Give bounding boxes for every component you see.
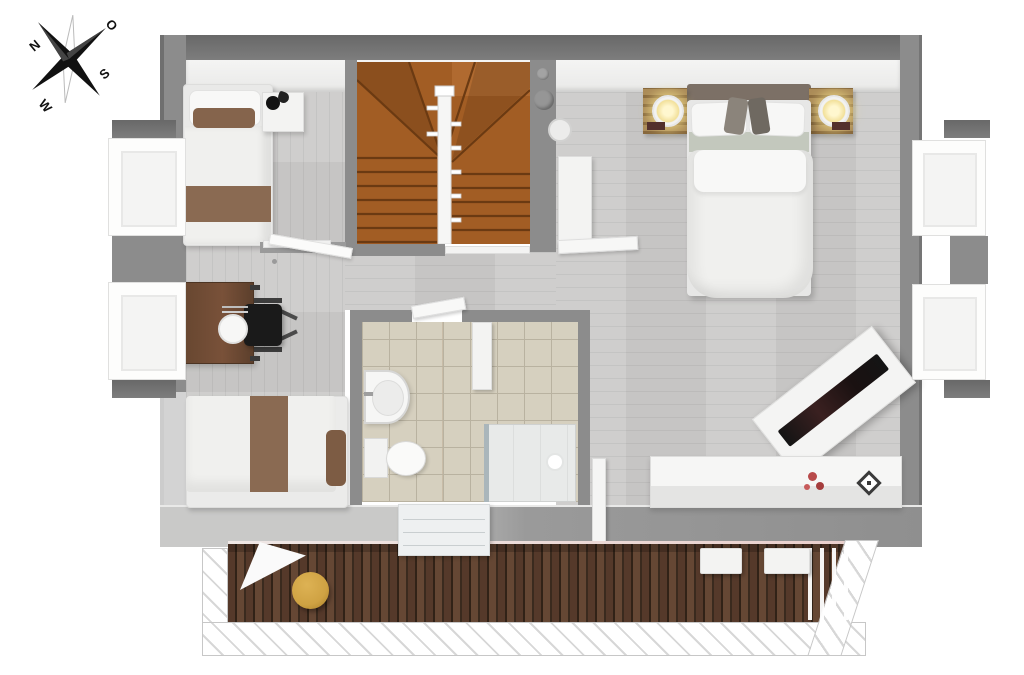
- diamond-decor-dot: [867, 481, 871, 485]
- floor-plan-canvas: N O S W: [0, 0, 1024, 675]
- railing-bottom: [202, 622, 866, 656]
- left-wall-ghost-lower: [160, 392, 186, 505]
- bathroom-top-wall-right: [462, 310, 590, 322]
- deck-wall-shadow: [228, 544, 856, 552]
- compass-label-o: O: [103, 16, 121, 33]
- stairwell-right-wall: [530, 60, 556, 252]
- left-window-1-glass: [121, 151, 177, 227]
- left-window-1: [108, 138, 186, 236]
- railing-right-balusters: [808, 548, 848, 620]
- flower-vase-red-2: [816, 482, 824, 490]
- stair-newel-cap-large: [534, 90, 554, 110]
- double-bed-duvet-fold: [694, 150, 806, 192]
- right-wall: [900, 35, 922, 505]
- shower-glass-panel: [484, 424, 489, 502]
- chair-armrest-bottom: [254, 347, 282, 352]
- left-window-2: [108, 282, 186, 380]
- left-window-mid-pier: [112, 236, 176, 282]
- right-window-1: [912, 140, 986, 236]
- compass-rose: N O S W: [12, 6, 126, 112]
- left-window-cap-top: [112, 120, 176, 138]
- deck-chair-2: [764, 548, 810, 574]
- shower-head-icon: [548, 455, 562, 469]
- stairwell-left-wall: [345, 60, 357, 252]
- glass-door-handle: [272, 259, 277, 264]
- compass-label-s: S: [96, 65, 113, 82]
- left-window-cap-bottom: [112, 380, 176, 398]
- deck-step-line-3: [403, 545, 485, 546]
- flower-vase-red-3: [804, 484, 810, 490]
- desk-leg-top: [250, 285, 260, 290]
- deck-step-line-1: [403, 519, 485, 520]
- stairwell-bottom-wall: [345, 244, 445, 256]
- bathroom-right-wall: [578, 310, 590, 505]
- staircase: [357, 62, 530, 244]
- single-bed-bottom-runner: [250, 396, 288, 492]
- deck-door-leaf: [592, 458, 606, 546]
- desk-leg-bottom: [250, 356, 260, 361]
- nightstand-right-book: [832, 122, 850, 130]
- single-bed-top-accent-pillow: [193, 108, 255, 128]
- right-window-cap-bottom: [944, 380, 990, 398]
- right-window-1-glass: [923, 153, 977, 227]
- washbasin-faucet: [364, 392, 373, 396]
- deck-step-line-2: [403, 532, 485, 533]
- toilet-cistern: [364, 438, 388, 478]
- pouf-yellow: [292, 572, 329, 609]
- stair-exit-threshold: [445, 246, 530, 254]
- chair-armrest-top: [254, 298, 282, 303]
- right-window-mid-pier: [950, 236, 988, 284]
- top-wall: [160, 35, 905, 60]
- chair: [244, 304, 282, 346]
- plate: [218, 314, 248, 344]
- single-bed-bottom-pillow: [326, 430, 346, 486]
- single-bed-top-runner: [185, 186, 271, 222]
- flower-vase-red: [808, 472, 817, 481]
- washbasin-bowl: [372, 380, 404, 416]
- deck-steps-threshold: [398, 504, 490, 556]
- bathroom-cabinet: [472, 322, 492, 390]
- deck-chair-1: [700, 548, 742, 574]
- toilet-bowl: [386, 441, 426, 476]
- compass-label-w: W: [36, 96, 56, 112]
- compass-label-n: N: [26, 37, 43, 55]
- left-window-2-glass: [121, 295, 177, 371]
- laundry-basket: [548, 118, 572, 142]
- single-bed-top-duvet: [185, 126, 271, 244]
- bathroom-left-wall: [350, 310, 362, 505]
- shower-tray: [486, 424, 576, 502]
- stair-newel-cap-small: [537, 68, 549, 80]
- wardrobe: [558, 156, 592, 244]
- right-window-2: [912, 284, 986, 380]
- right-window-cap-top: [944, 120, 990, 138]
- nightstand-left-book: [647, 122, 665, 130]
- cutlery-knife: [222, 311, 248, 313]
- right-window-2-glass: [923, 297, 977, 371]
- cutlery-fork: [222, 306, 248, 308]
